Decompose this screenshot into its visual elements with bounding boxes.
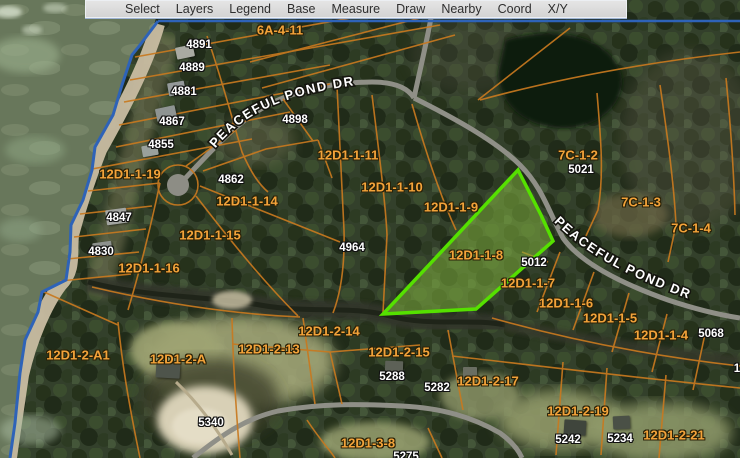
menu-item-layers[interactable]: Layers <box>176 2 214 16</box>
cul-de-sac <box>167 174 189 196</box>
menu-item-base[interactable]: Base <box>287 2 316 16</box>
menu-item-legend[interactable]: Legend <box>229 2 271 16</box>
menu-item-draw[interactable]: Draw <box>396 2 425 16</box>
menu-item-xy[interactable]: X/Y <box>548 2 568 16</box>
map-canvas[interactable]: PEACEFUL POND DR PEACEFUL POND DR <box>0 0 740 458</box>
menu-item-nearby[interactable]: Nearby <box>441 2 481 16</box>
map-toolbar: Select Layers Legend Base Measure Draw N… <box>85 0 627 19</box>
menu-item-select[interactable]: Select <box>125 2 160 16</box>
menu-item-measure[interactable]: Measure <box>332 2 381 16</box>
aerial-imagery <box>0 0 740 458</box>
menu-item-coord[interactable]: Coord <box>498 2 532 16</box>
gis-map-app: PEACEFUL POND DR PEACEFUL POND DR 6A-4-1… <box>0 0 740 458</box>
